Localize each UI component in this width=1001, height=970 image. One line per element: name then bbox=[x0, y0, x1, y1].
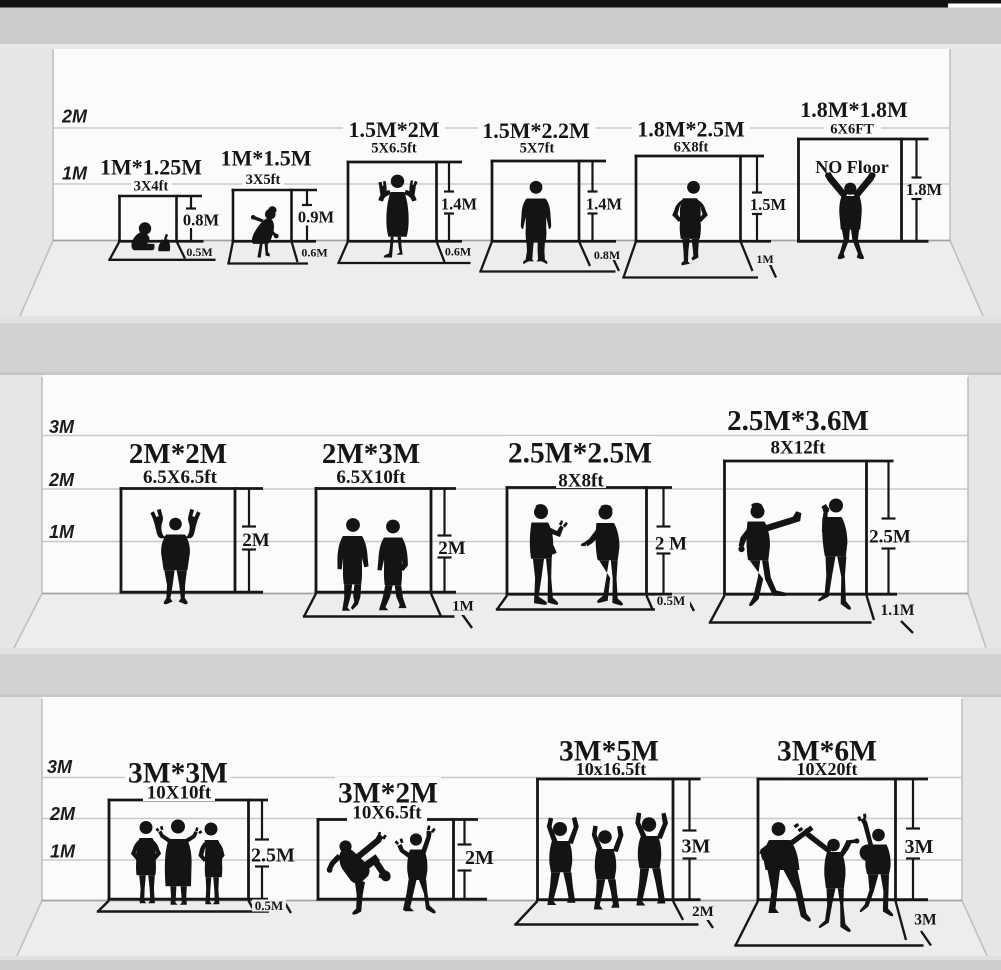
svg-text:1M: 1M bbox=[62, 164, 88, 184]
svg-text:1M: 1M bbox=[49, 522, 75, 542]
svg-text:2M*3M: 2M*3M bbox=[322, 438, 420, 470]
svg-text:2M: 2M bbox=[61, 107, 88, 127]
svg-text:2M: 2M bbox=[692, 904, 714, 920]
svg-text:0.5M: 0.5M bbox=[186, 245, 212, 259]
svg-text:1M: 1M bbox=[756, 252, 773, 266]
svg-text:2M: 2M bbox=[438, 538, 466, 559]
svg-text:1.8M*1.8M: 1.8M*1.8M bbox=[800, 97, 908, 122]
svg-text:0.5M: 0.5M bbox=[657, 593, 686, 608]
svg-text:6X6FT: 6X6FT bbox=[830, 122, 874, 138]
svg-text:0.6M: 0.6M bbox=[301, 246, 327, 260]
svg-text:3M: 3M bbox=[905, 836, 934, 858]
svg-text:1.5M*2.2M: 1.5M*2.2M bbox=[482, 118, 590, 143]
svg-text:2 M: 2 M bbox=[655, 534, 687, 555]
svg-text:3M: 3M bbox=[682, 836, 711, 858]
svg-text:5X6.5ft: 5X6.5ft bbox=[371, 141, 417, 157]
svg-text:2M: 2M bbox=[242, 530, 270, 551]
svg-text:2M: 2M bbox=[465, 847, 494, 869]
svg-text:3M: 3M bbox=[914, 912, 937, 929]
svg-text:1M*1.5M: 1M*1.5M bbox=[220, 146, 311, 171]
svg-text:2.5M: 2.5M bbox=[869, 527, 911, 548]
svg-text:1.8M*2.5M: 1.8M*2.5M bbox=[637, 117, 745, 142]
svg-text:10x16.5ft: 10x16.5ft bbox=[576, 759, 647, 779]
svg-text:6.5X6.5ft: 6.5X6.5ft bbox=[143, 467, 218, 488]
svg-text:0.8M: 0.8M bbox=[594, 248, 620, 262]
svg-text:10X6.5ft: 10X6.5ft bbox=[352, 803, 422, 824]
svg-text:0.6M: 0.6M bbox=[445, 245, 471, 259]
svg-text:0.8M: 0.8M bbox=[183, 211, 220, 230]
svg-text:1M*1.25M: 1M*1.25M bbox=[100, 155, 202, 180]
svg-text:8X12ft: 8X12ft bbox=[771, 438, 827, 459]
svg-text:0.5M: 0.5M bbox=[255, 898, 284, 913]
svg-text:10X20ft: 10X20ft bbox=[797, 759, 858, 779]
svg-text:8X8ft: 8X8ft bbox=[558, 471, 604, 492]
svg-text:1.5M*2M: 1.5M*2M bbox=[348, 117, 439, 142]
svg-text:3X5ft: 3X5ft bbox=[246, 172, 281, 188]
svg-text:6.5X10ft: 6.5X10ft bbox=[336, 467, 406, 488]
svg-text:2.5M: 2.5M bbox=[251, 845, 295, 867]
svg-text:1M: 1M bbox=[452, 599, 474, 615]
svg-text:2M*2M: 2M*2M bbox=[129, 438, 227, 470]
svg-text:3M: 3M bbox=[47, 757, 73, 777]
svg-text:2.5M*2.5M: 2.5M*2.5M bbox=[508, 438, 652, 470]
svg-text:3M: 3M bbox=[49, 417, 75, 437]
svg-text:6X8ft: 6X8ft bbox=[674, 140, 709, 156]
svg-text:1M: 1M bbox=[50, 842, 76, 862]
svg-text:1.8M: 1.8M bbox=[906, 180, 943, 199]
svg-text:1.4M: 1.4M bbox=[441, 195, 478, 214]
svg-text:2M: 2M bbox=[48, 470, 75, 490]
svg-text:3X4ft: 3X4ft bbox=[134, 179, 169, 195]
svg-text:1.4M: 1.4M bbox=[586, 195, 623, 214]
svg-text:1.5M: 1.5M bbox=[750, 195, 787, 214]
svg-text:10X10ft: 10X10ft bbox=[147, 783, 212, 804]
svg-text:2.5M*3.6M: 2.5M*3.6M bbox=[727, 405, 869, 437]
svg-text:0.9M: 0.9M bbox=[298, 208, 335, 227]
svg-text:1.1M: 1.1M bbox=[880, 602, 914, 619]
svg-text:2M: 2M bbox=[49, 804, 76, 824]
svg-text:5X7ft: 5X7ft bbox=[520, 141, 555, 157]
